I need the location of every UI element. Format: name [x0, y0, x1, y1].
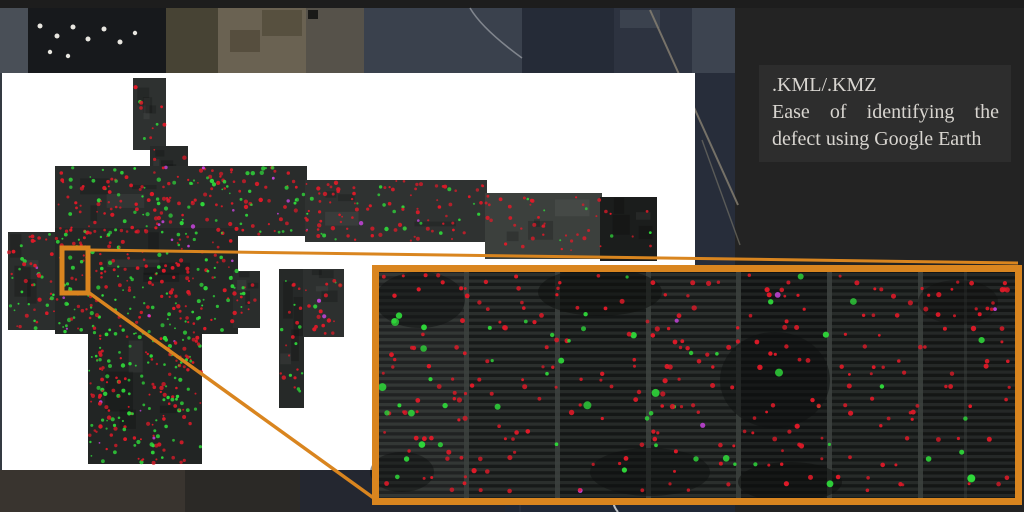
- satellite-parcel: [28, 8, 166, 73]
- panel-column: [827, 272, 918, 498]
- satellite-parcel: [0, 470, 185, 512]
- caption-body: Ease of identifying the defect using Goo…: [772, 99, 999, 153]
- satellite-parcel: [262, 10, 302, 36]
- caption-panel: .KML/.KMZ Ease of identifying the defect…: [759, 65, 1011, 162]
- top-bar: [0, 0, 1024, 8]
- satellite-parcel: [308, 10, 318, 19]
- satellite-parcel: [692, 8, 735, 73]
- satellite-parcel: [230, 30, 260, 52]
- satellite-parcel: [166, 8, 218, 73]
- satellite-parcel: [364, 8, 522, 73]
- satellite-parcel: [0, 8, 28, 73]
- zoom-inset: [370, 268, 1019, 502]
- satellite-parcel: [185, 470, 300, 512]
- slide: .KML/.KMZ Ease of identifying the defect…: [0, 0, 1024, 512]
- satellite-parcel: [522, 8, 614, 73]
- caption-title: .KML/.KMZ: [772, 72, 999, 99]
